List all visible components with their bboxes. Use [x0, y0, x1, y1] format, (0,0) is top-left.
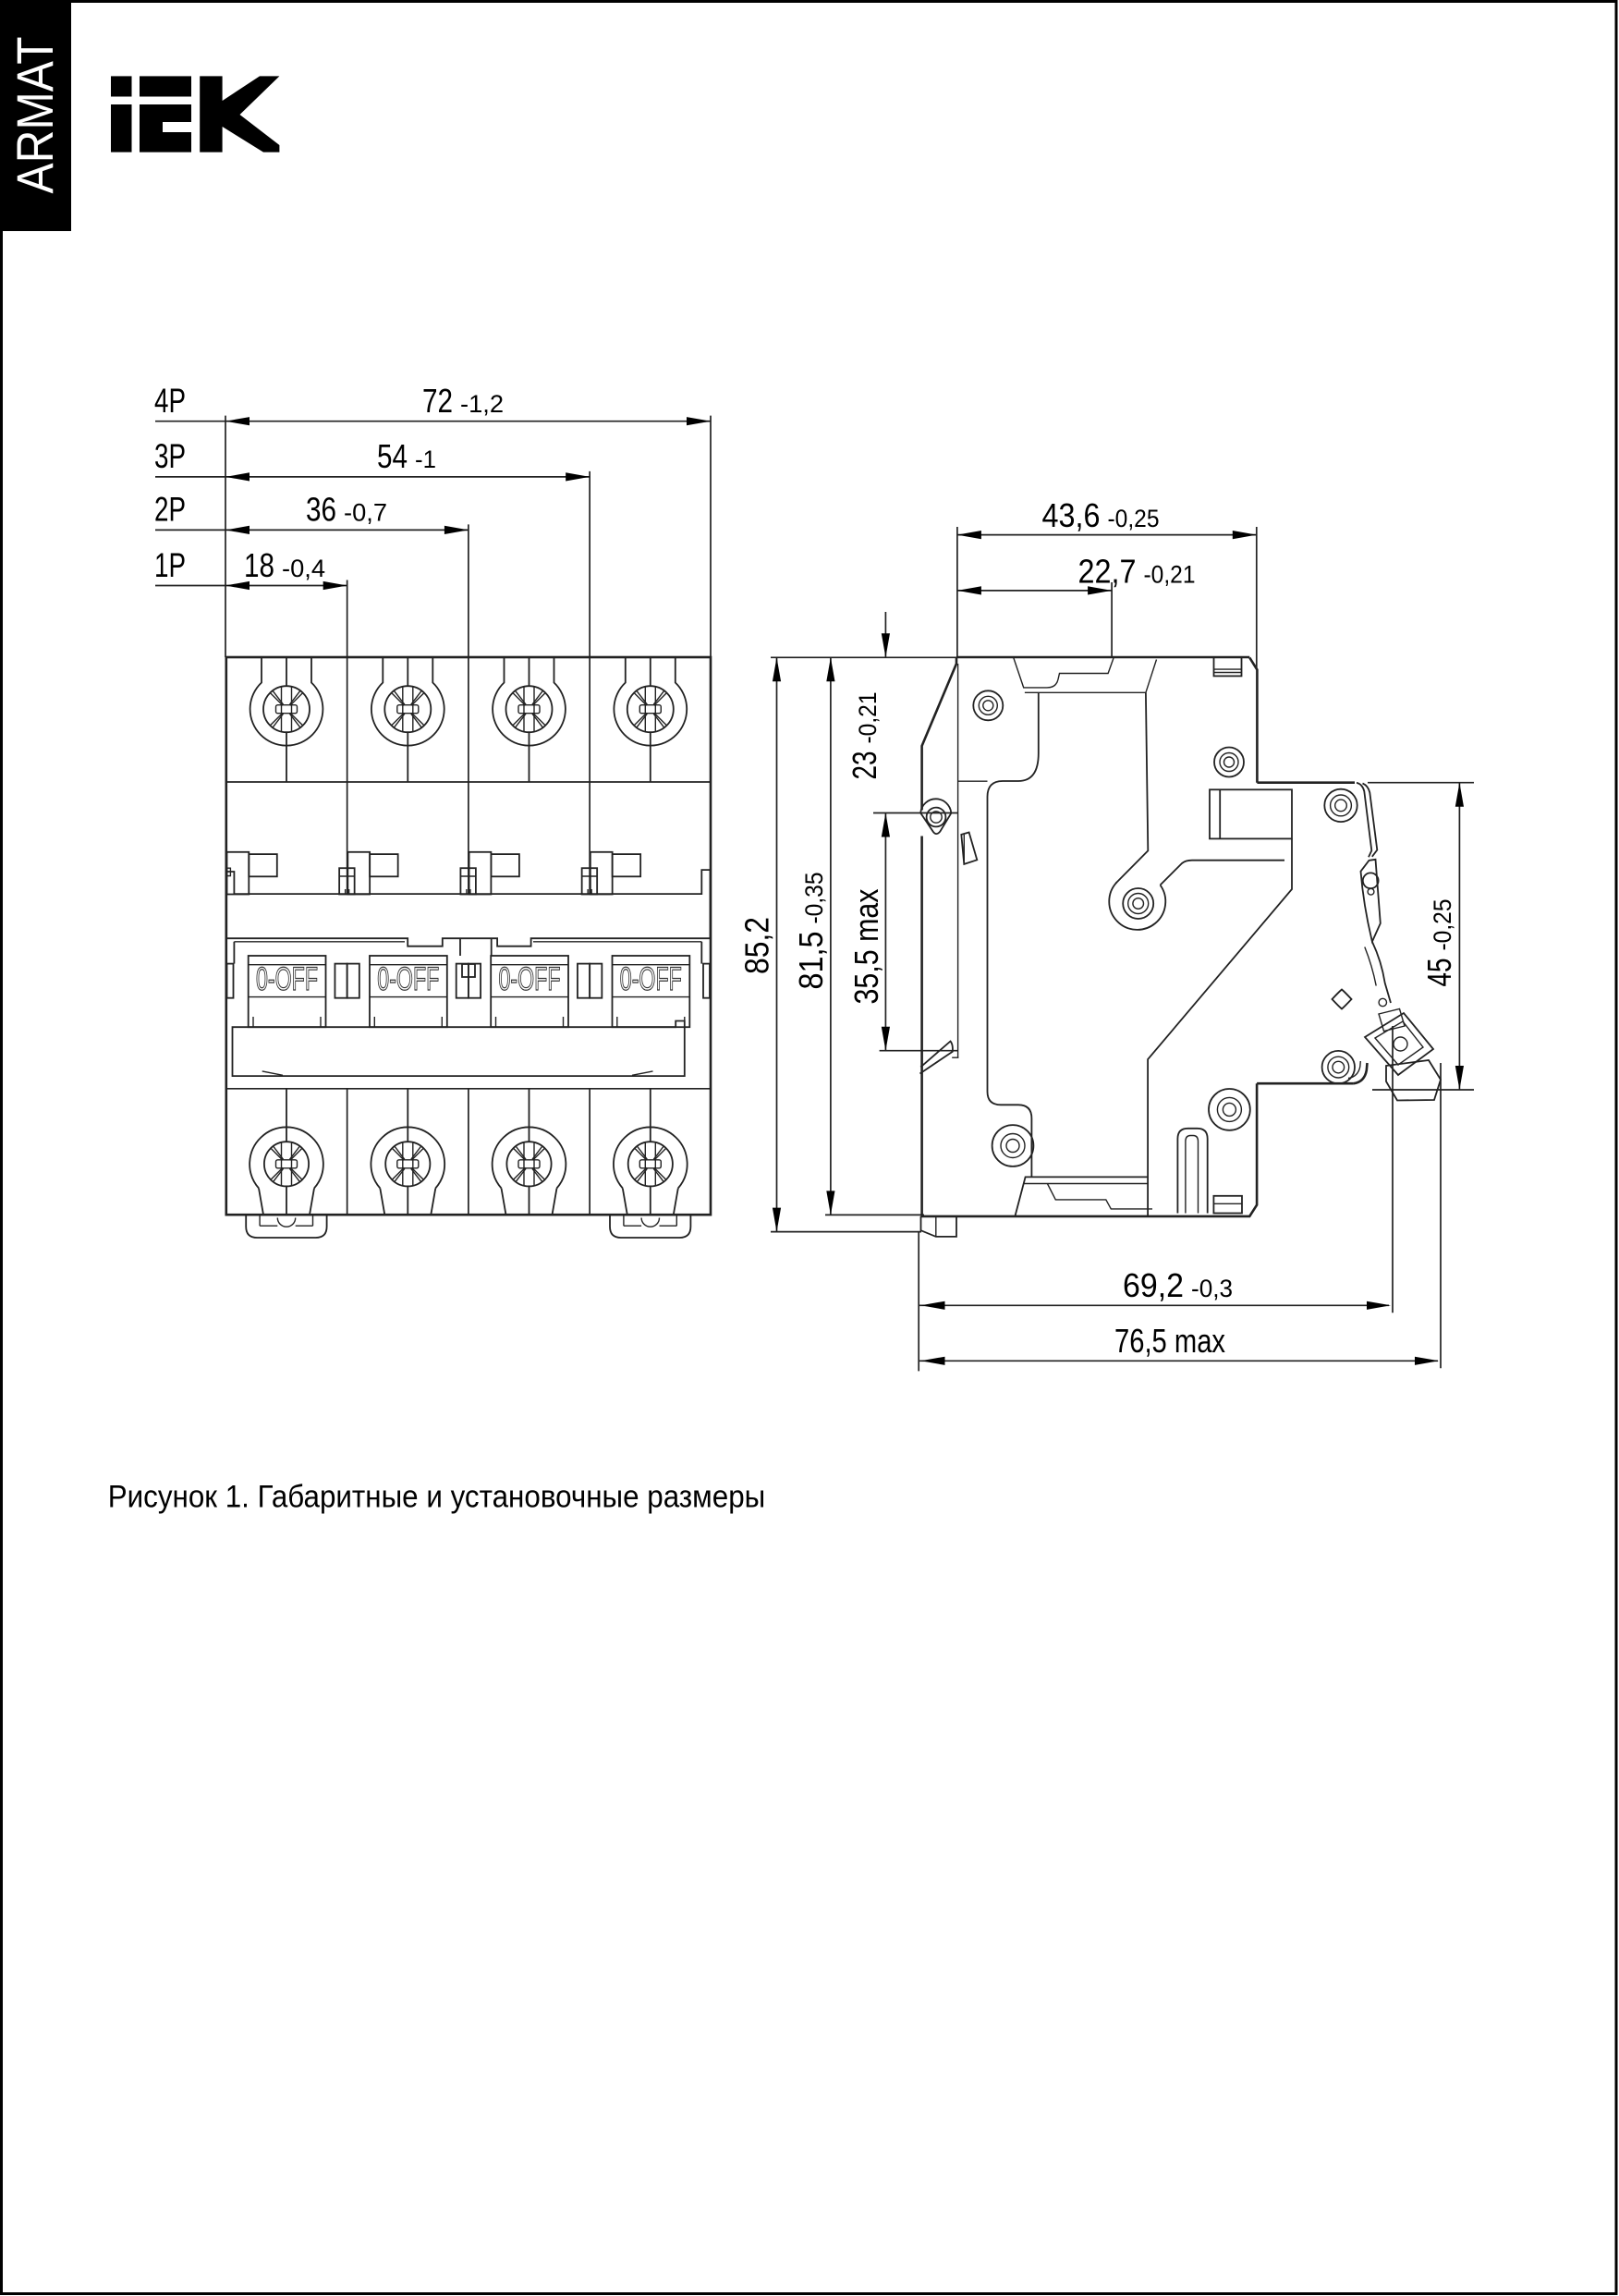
svg-text:3P: 3P	[154, 437, 186, 475]
svg-text:-0,25: -0,25	[1429, 899, 1456, 951]
svg-text:-1,2: -1,2	[460, 390, 504, 418]
svg-text:54: 54	[377, 437, 408, 475]
svg-text:36: 36	[306, 491, 336, 529]
svg-text:-0,35: -0,35	[800, 873, 828, 924]
svg-text:-0,4: -0,4	[282, 555, 325, 582]
svg-text:45: 45	[1420, 959, 1458, 987]
svg-text:76,5 max: 76,5 max	[1114, 1322, 1225, 1360]
svg-text:22,7: 22,7	[1078, 553, 1137, 591]
svg-text:-0,21: -0,21	[1144, 561, 1196, 589]
svg-text:-1: -1	[415, 446, 436, 473]
svg-text:35,5 max: 35,5 max	[847, 889, 885, 1005]
svg-text:2P: 2P	[154, 491, 186, 529]
svg-text:69,2: 69,2	[1123, 1266, 1184, 1304]
svg-text:-0,21: -0,21	[854, 692, 882, 744]
svg-text:ARMAT: ARMAT	[6, 37, 64, 194]
svg-text:43,6: 43,6	[1042, 496, 1101, 534]
svg-text:1P: 1P	[154, 546, 186, 584]
svg-text:85,2: 85,2	[738, 917, 776, 974]
svg-text:Рисунок 1. Габаритные и устано: Рисунок 1. Габаритные и установочные раз…	[108, 1480, 766, 1515]
svg-text:-0,3: -0,3	[1191, 1275, 1233, 1302]
svg-text:4P: 4P	[154, 382, 186, 420]
svg-text:81,5: 81,5	[792, 932, 830, 990]
svg-text:72: 72	[422, 382, 453, 420]
svg-text:23: 23	[846, 751, 883, 780]
svg-text:-0,7: -0,7	[344, 499, 387, 527]
svg-text:18: 18	[244, 546, 274, 584]
svg-text:-0,25: -0,25	[1108, 505, 1160, 532]
